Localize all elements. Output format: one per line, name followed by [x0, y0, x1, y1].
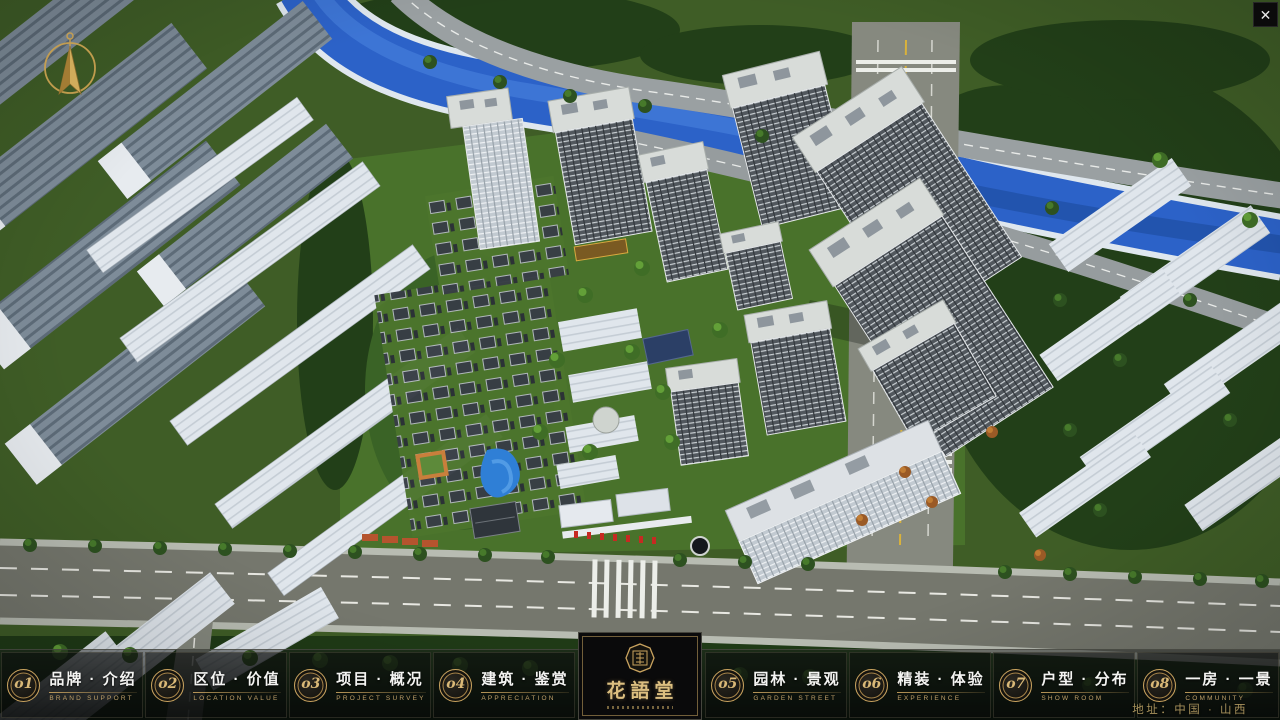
- nav-item-location[interactable]: o2 区位 · 价值LOCATION VALUE: [145, 652, 287, 718]
- nav-item-title: 一房 · 一景: [1185, 668, 1272, 689]
- close-icon: ✕: [1260, 8, 1272, 22]
- nav-item-title: 户型 · 分布: [1041, 668, 1128, 689]
- nav-item-project[interactable]: o3 项目 · 概况PROJECT SURVEY: [289, 652, 431, 718]
- nav-item-floorplan[interactable]: o7 户型 · 分布SHOW ROOM: [993, 652, 1135, 718]
- nav-badge-icon: o7: [999, 669, 1032, 702]
- masterplan-3d-scene[interactable]: [0, 0, 1280, 720]
- seal-icon: [625, 643, 655, 673]
- nav-item-subtitle: EXPERIENCE: [897, 695, 961, 702]
- nav-badge-icon: o1: [7, 669, 40, 702]
- nav-item-subtitle: PROJECT SURVEY: [336, 695, 425, 702]
- nav-item-title: 建筑 · 鉴赏: [481, 668, 568, 689]
- nav-badge-icon: o8: [1143, 669, 1176, 702]
- nav-item-title: 品牌 · 介绍: [49, 668, 136, 689]
- nav-group-left: o1 品牌 · 介绍BRAND SUPPORT o2 区位 · 价值LOCATI…: [0, 650, 576, 720]
- nav-item-subtitle: APPRECIATION: [481, 695, 555, 702]
- nav-item-subtitle: BRAND SUPPORT: [49, 695, 133, 702]
- compass-icon: [40, 28, 100, 100]
- nav-item-title: 精装 · 体验: [897, 668, 984, 689]
- nav-item-interior[interactable]: o6 精装 · 体验EXPERIENCE: [849, 652, 991, 718]
- nav-item-brand[interactable]: o1 品牌 · 介绍BRAND SUPPORT: [1, 652, 143, 718]
- nav-item-title: 项目 · 概况: [336, 668, 423, 689]
- nav-badge-icon: o3: [294, 669, 327, 702]
- app-window: ✕ o1 品牌 · 介绍BRAND SUPPORT o2 区位 · 价值LOCA…: [0, 0, 1280, 720]
- logo-title: 花語堂: [601, 676, 678, 703]
- address-label: 地址：中国 · 山西: [1132, 701, 1248, 717]
- logo[interactable]: 花語堂: [578, 632, 702, 720]
- nav-item-architecture[interactable]: o4 建筑 · 鉴赏APPRECIATION: [433, 652, 575, 718]
- nav-item-title: 区位 · 价值: [193, 668, 280, 689]
- nav-badge-icon: o6: [855, 669, 888, 702]
- logo-caption: [607, 706, 673, 709]
- close-button[interactable]: ✕: [1253, 2, 1278, 27]
- nav-item-title: 园林 · 景观: [753, 668, 840, 689]
- nav-item-garden[interactable]: o5 园林 · 景观GARDEN STREET: [705, 652, 847, 718]
- nav-badge-icon: o5: [711, 669, 744, 702]
- nav-item-subtitle: LOCATION VALUE: [193, 695, 279, 702]
- nav-item-subtitle: SHOW ROOM: [1041, 695, 1103, 702]
- vignette: [0, 0, 1280, 720]
- nav-item-subtitle: GARDEN STREET: [753, 695, 837, 702]
- nav-badge-icon: o2: [151, 669, 184, 702]
- nav-badge-icon: o4: [439, 669, 472, 702]
- bottom-nav: o1 品牌 · 介绍BRAND SUPPORT o2 区位 · 价值LOCATI…: [0, 649, 1280, 720]
